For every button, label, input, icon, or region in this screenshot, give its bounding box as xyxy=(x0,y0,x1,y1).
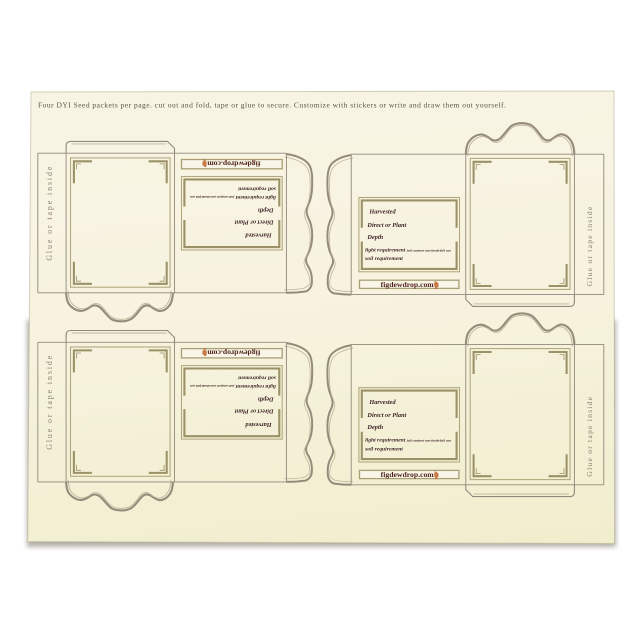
svg-text:Direct or Plant: Direct or Plant xyxy=(235,407,275,414)
svg-text:Glue or tape inside: Glue or tape inside xyxy=(585,206,594,287)
svg-text:Harvested: Harvested xyxy=(245,421,273,428)
svg-text:light requirement full sun/par: light requirement full sun/part sun/shad… xyxy=(190,383,276,389)
svg-text:Depth: Depth xyxy=(257,206,274,213)
svg-text:light requirement full sun/par: light requirement full sun/part sun/shad… xyxy=(365,248,451,254)
svg-text:Depth: Depth xyxy=(257,395,274,402)
svg-text:soil requirement: soil requirement xyxy=(364,256,403,262)
svg-text:Direct or Plant: Direct or Plant xyxy=(235,218,275,225)
svg-text:Depth: Depth xyxy=(366,424,383,431)
svg-text:soil requirement: soil requirement xyxy=(364,446,403,452)
svg-text:figdewdrop.com: figdewdrop.com xyxy=(207,160,261,169)
svg-text:Glue or tape inside: Glue or tape inside xyxy=(45,354,54,450)
svg-text:Harvested: Harvested xyxy=(368,209,396,216)
svg-text:Harvested: Harvested xyxy=(245,232,273,239)
svg-text:Direct or Plant: Direct or Plant xyxy=(366,222,406,229)
svg-text:figdewdrop.com: figdewdrop.com xyxy=(381,470,435,479)
svg-text:figdewdrop.com: figdewdrop.com xyxy=(381,280,435,289)
svg-text:soil requirement: soil requirement xyxy=(238,185,277,191)
svg-text:soil requirement: soil requirement xyxy=(238,374,277,380)
svg-text:Glue or tape inside: Glue or tape inside xyxy=(45,165,54,261)
svg-text:Harvested: Harvested xyxy=(368,399,396,406)
svg-text:light requirement full sun/par: light requirement full sun/part sun/shad… xyxy=(190,194,276,200)
svg-text:Direct or Plant: Direct or Plant xyxy=(366,412,406,419)
svg-text:Four DYI Seed packets per page: Four DYI Seed packets per page. cut out … xyxy=(38,101,506,110)
svg-text:figdewdrop.com: figdewdrop.com xyxy=(207,349,261,358)
svg-text:light requirement full sun/par: light requirement full sun/part sun/shad… xyxy=(365,438,451,444)
svg-text:Depth: Depth xyxy=(366,234,383,241)
svg-text:Glue or tape inside: Glue or tape inside xyxy=(585,396,594,477)
